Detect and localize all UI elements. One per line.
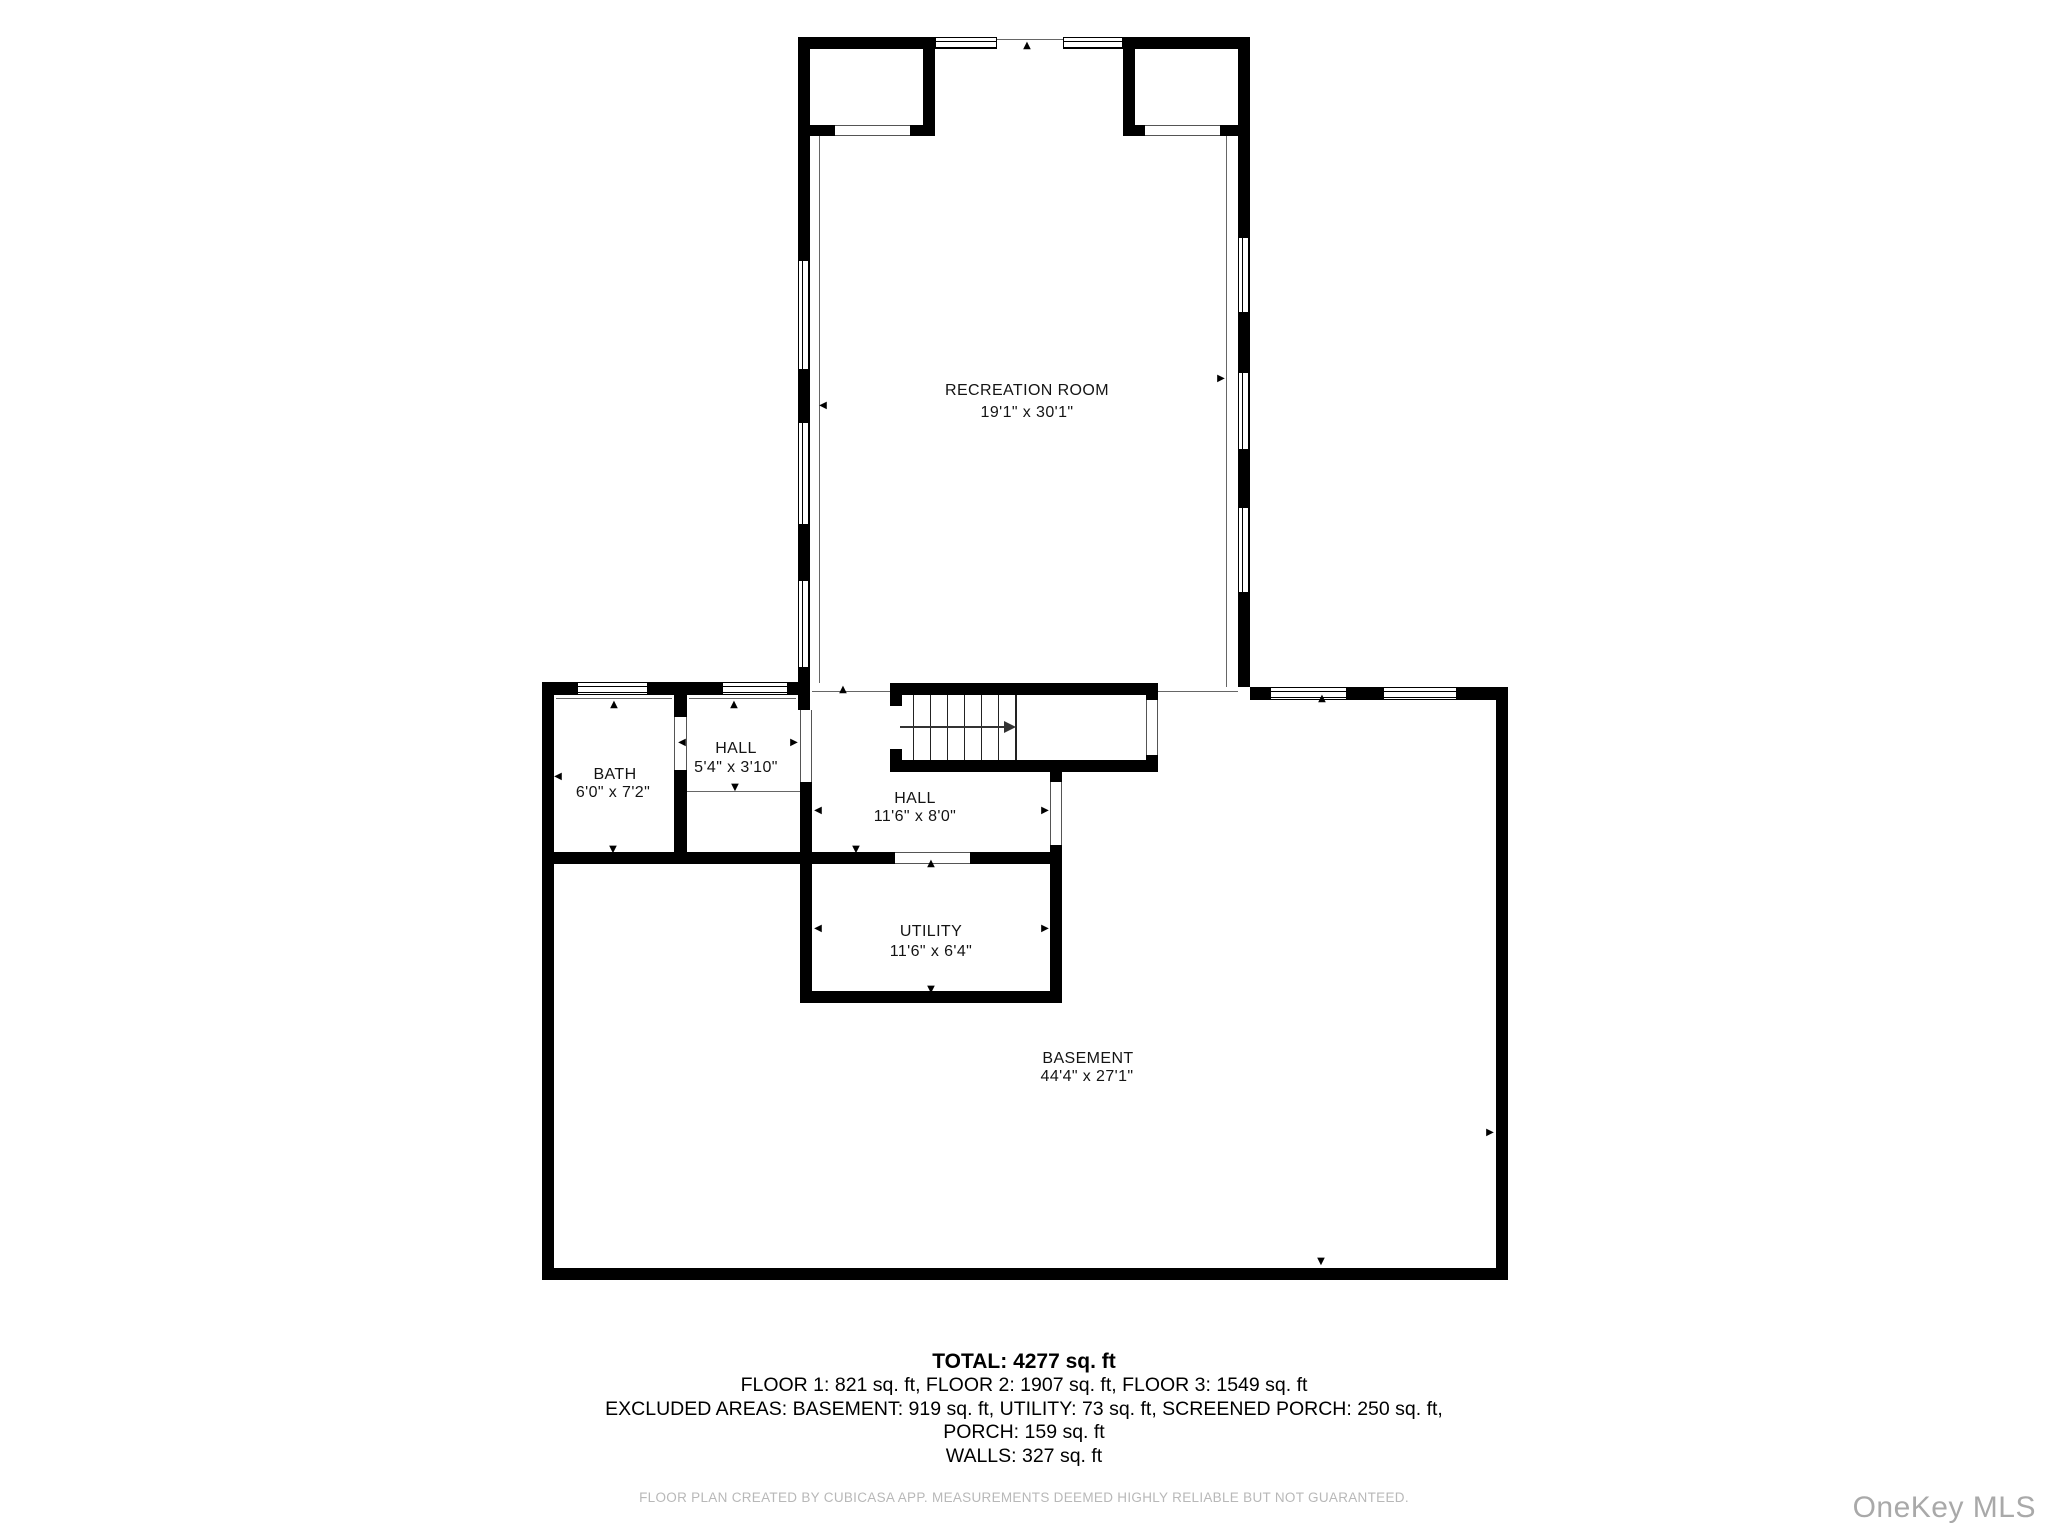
room-dims-hall: 11'6" x 8'0"	[874, 808, 956, 826]
wall	[788, 682, 798, 695]
wall	[798, 37, 810, 260]
wall	[798, 668, 810, 710]
wall	[1347, 687, 1383, 700]
direction-arrow-icon: ▼	[1023, 684, 1031, 694]
floor-areas-text: FLOOR 1: 821 sq. ft, FLOOR 2: 1907 sq. f…	[0, 1374, 2048, 1398]
wall	[542, 682, 554, 1280]
opening-line	[812, 691, 890, 692]
direction-arrow-icon: ▶	[1041, 924, 1049, 934]
room-label-basement: BASEMENT	[1042, 1050, 1133, 1068]
direction-arrow-icon: ▶	[1217, 374, 1225, 384]
closet-opening	[835, 125, 910, 136]
window	[798, 422, 810, 525]
wall	[674, 682, 687, 717]
wall	[1123, 37, 1250, 49]
wall	[1050, 772, 1062, 782]
wall	[798, 370, 810, 422]
wall	[798, 125, 835, 136]
direction-arrow-icon: ◀	[814, 806, 822, 816]
opening-line	[1158, 691, 1238, 692]
closet-opening	[1145, 125, 1220, 136]
room-dims-utility: 11'6" x 6'4"	[890, 943, 972, 961]
room-dims-basement: 44'4" x 27'1"	[1041, 1068, 1134, 1086]
direction-arrow-icon: ▼	[1317, 1257, 1325, 1267]
window	[798, 580, 810, 668]
direction-arrow-icon: ▲	[1318, 694, 1326, 704]
door-opening	[1050, 782, 1062, 845]
wall	[800, 782, 812, 1003]
wall	[910, 125, 935, 136]
direction-arrow-icon: ▲	[839, 685, 847, 695]
room-label-utility: UTILITY	[900, 923, 962, 941]
window	[1238, 237, 1250, 313]
wall	[1123, 125, 1145, 136]
wall	[1146, 683, 1158, 700]
room-dims-hall-small: 5'4" x 3'10"	[694, 759, 778, 777]
direction-arrow-icon: ▶	[1486, 1128, 1494, 1138]
window	[1238, 372, 1250, 450]
wall	[1238, 450, 1250, 507]
direction-arrow-icon: ▼	[731, 783, 739, 793]
wall	[798, 525, 810, 580]
direction-arrow-icon: ▲	[927, 859, 935, 869]
wall	[1146, 755, 1158, 772]
wall	[1238, 37, 1250, 237]
direction-arrow-icon: ◀	[554, 772, 562, 782]
window	[722, 682, 788, 695]
window	[798, 260, 810, 370]
window	[1063, 37, 1123, 49]
room-label-bath: BATH	[593, 766, 636, 784]
room-dims-bath: 6'0" x 7'2"	[576, 784, 650, 802]
total-area-text: TOTAL: 4277 sq. ft	[0, 1350, 2048, 1374]
area-summary: TOTAL: 4277 sq. ft FLOOR 1: 821 sq. ft, …	[0, 1350, 2048, 1468]
direction-arrow-icon: ▲	[730, 700, 738, 710]
direction-arrow-icon: ◀	[819, 401, 827, 411]
watermark-text: OneKey MLS	[1853, 1491, 2036, 1525]
direction-arrow-icon: ▶	[790, 738, 798, 748]
wall	[1050, 845, 1062, 1003]
direction-arrow-icon: ▼	[609, 845, 617, 855]
room-label-hall: HALL	[894, 790, 936, 808]
direction-arrow-icon: ▲	[1023, 41, 1031, 51]
direction-arrow-icon: ▼	[852, 845, 860, 855]
window	[1238, 507, 1250, 593]
walls-area-text: WALLS: 327 sq. ft	[0, 1445, 2048, 1469]
window	[935, 37, 997, 49]
wall-face-line	[1226, 136, 1227, 687]
wall	[1220, 125, 1250, 136]
opening-line	[687, 791, 800, 792]
window	[1270, 687, 1347, 700]
room-label-hall-small: HALL	[715, 740, 757, 758]
floor-plan: ▲ ▲ ▼ ▲ ▲ ▲ ◀ ◀ ▶ ▼ ▼ ◀ ▶ ▼ ▲ ◀ ▶ ▼ ▶ ▼ …	[0, 0, 2048, 1536]
wall	[542, 1268, 1508, 1280]
wall	[1123, 37, 1135, 135]
stair-direction-line	[900, 726, 1004, 728]
porch-area-text: PORCH: 159 sq. ft	[0, 1421, 2048, 1445]
stair-direction-arrow-icon	[1004, 721, 1016, 733]
direction-arrow-icon: ▲	[610, 700, 618, 710]
direction-arrow-icon: ◀	[814, 924, 822, 934]
disclaimer-text: FLOOR PLAN CREATED BY CUBICASA APP. MEAS…	[0, 1490, 2048, 1505]
window-sill-line	[689, 698, 796, 699]
window	[1383, 687, 1457, 700]
excluded-areas-text: EXCLUDED AREAS: BASEMENT: 919 sq. ft, UT…	[0, 1398, 2048, 1422]
wall	[1496, 687, 1508, 1280]
stair-opening	[1146, 700, 1158, 755]
door-opening	[800, 710, 812, 782]
wall	[1250, 687, 1270, 700]
wall	[1238, 593, 1250, 687]
direction-arrow-icon: ▼	[927, 985, 935, 995]
direction-arrow-icon: ▶	[1041, 806, 1049, 816]
wall	[890, 749, 902, 772]
wall	[923, 37, 935, 135]
room-label-recreation-room: RECREATION ROOM	[945, 382, 1109, 400]
direction-arrow-icon: ◀	[678, 738, 686, 748]
wall	[890, 683, 902, 706]
wall	[1238, 313, 1250, 372]
room-dims-recreation-room: 19'1" x 30'1"	[981, 404, 1074, 422]
wall	[542, 852, 895, 864]
wall	[798, 37, 935, 49]
window	[577, 682, 648, 695]
wall	[890, 760, 1158, 772]
wall	[970, 852, 1062, 864]
wall	[674, 770, 687, 864]
